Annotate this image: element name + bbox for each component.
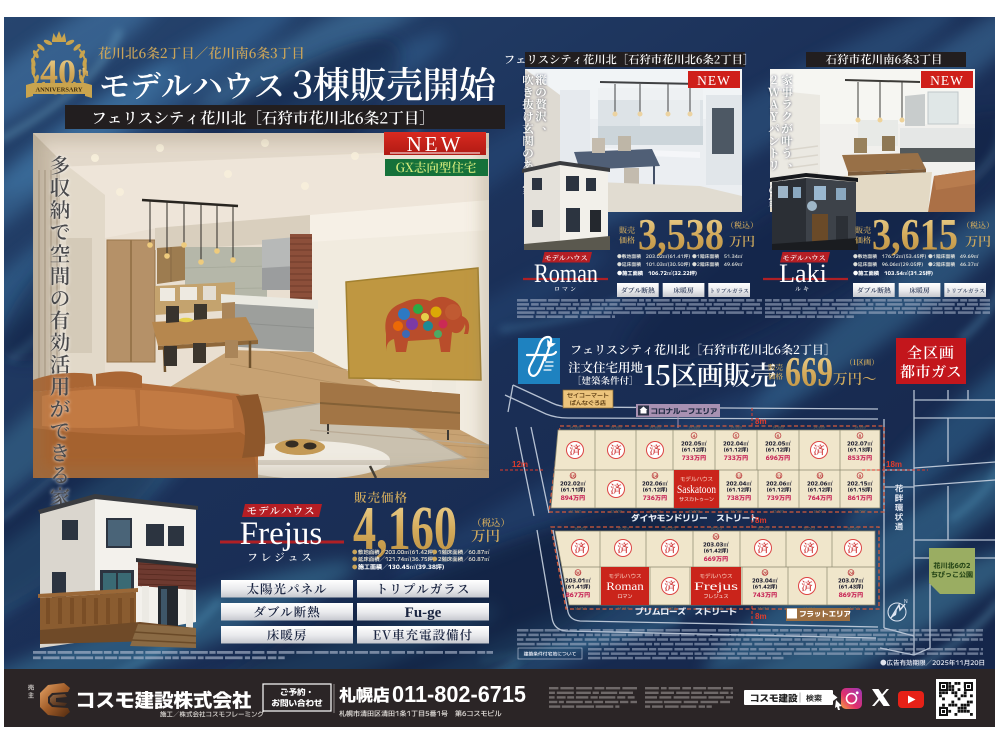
svg-text:26: 26 bbox=[762, 571, 768, 577]
svg-text:NEW: NEW bbox=[407, 132, 464, 156]
svg-text:14,889: 14,889 bbox=[610, 426, 622, 430]
svg-text:11: 11 bbox=[776, 474, 781, 480]
svg-text:12,502: 12,502 bbox=[730, 510, 742, 514]
svg-text:14,889: 14,889 bbox=[730, 426, 742, 430]
svg-text:16,523: 16,523 bbox=[664, 527, 676, 531]
svg-text:16,523: 16,523 bbox=[847, 527, 859, 531]
svg-text:24: 24 bbox=[848, 571, 854, 577]
svg-text:8m: 8m bbox=[755, 612, 767, 621]
svg-text:NEW: NEW bbox=[697, 73, 731, 88]
svg-text:011-802-6715: 011-802-6715 bbox=[392, 681, 526, 707]
svg-text:Roman: Roman bbox=[534, 259, 598, 288]
svg-text:3,615: 3,615 bbox=[872, 210, 958, 259]
svg-text:Frejus: Frejus bbox=[694, 579, 738, 593]
svg-text:NEW: NEW bbox=[930, 73, 964, 88]
svg-text:669: 669 bbox=[785, 350, 833, 396]
svg-text:Frejus: Frejus bbox=[240, 516, 323, 552]
svg-text:16: 16 bbox=[570, 474, 576, 480]
svg-text:16,523: 16,523 bbox=[574, 527, 586, 531]
svg-text:12,502: 12,502 bbox=[569, 510, 581, 514]
svg-text:14,889: 14,889 bbox=[649, 426, 661, 430]
svg-text:14,889: 14,889 bbox=[569, 426, 581, 430]
svg-text:12,502: 12,502 bbox=[813, 510, 825, 514]
svg-text:Laki: Laki bbox=[779, 259, 827, 288]
svg-text:12,502: 12,502 bbox=[649, 510, 661, 514]
svg-text:4: 4 bbox=[693, 434, 696, 440]
svg-text:20: 20 bbox=[713, 535, 719, 541]
svg-text:5: 5 bbox=[735, 434, 738, 440]
svg-text:3,538: 3,538 bbox=[638, 210, 724, 259]
svg-text:Roman: Roman bbox=[606, 579, 644, 593]
svg-text:12: 12 bbox=[736, 474, 742, 480]
svg-text:8m: 8m bbox=[755, 516, 767, 525]
svg-text:16,523: 16,523 bbox=[757, 527, 769, 531]
svg-text:12,502: 12,502 bbox=[688, 510, 700, 514]
svg-text:14,889: 14,889 bbox=[813, 426, 825, 430]
svg-text:16,523: 16,523 bbox=[803, 527, 815, 531]
svg-text:16,523: 16,523 bbox=[710, 527, 722, 531]
svg-text:ANNIVERSARY: ANNIVERSARY bbox=[36, 87, 83, 94]
svg-text:8: 8 bbox=[859, 434, 862, 440]
svg-text:18m: 18m bbox=[886, 460, 902, 469]
svg-text:9: 9 bbox=[859, 474, 862, 480]
svg-text:12,502: 12,502 bbox=[772, 510, 784, 514]
svg-text:10: 10 bbox=[817, 474, 823, 480]
svg-text:30: 30 bbox=[575, 571, 581, 577]
svg-text:6: 6 bbox=[777, 434, 780, 440]
svg-text:8m: 8m bbox=[755, 417, 767, 426]
svg-text:12,502: 12,502 bbox=[854, 510, 866, 514]
svg-text:14,814: 14,814 bbox=[617, 607, 629, 611]
svg-text:12m: 12m bbox=[512, 460, 528, 469]
svg-text:14,889: 14,889 bbox=[854, 426, 866, 430]
svg-text:Fu-ge: Fu-ge bbox=[405, 605, 442, 621]
svg-text:14,889: 14,889 bbox=[688, 426, 700, 430]
svg-text:Saskatoon: Saskatoon bbox=[677, 482, 716, 496]
svg-text:14,814: 14,814 bbox=[710, 607, 722, 611]
svg-text:16,523: 16,523 bbox=[617, 527, 629, 531]
svg-text:14,814: 14,814 bbox=[757, 607, 769, 611]
svg-text:th: th bbox=[78, 65, 89, 79]
svg-text:12,502: 12,502 bbox=[610, 510, 622, 514]
svg-text:N: N bbox=[904, 599, 908, 605]
svg-text:14,889: 14,889 bbox=[772, 426, 784, 430]
svg-text:14,814: 14,814 bbox=[574, 607, 586, 611]
svg-text:14: 14 bbox=[652, 474, 658, 480]
